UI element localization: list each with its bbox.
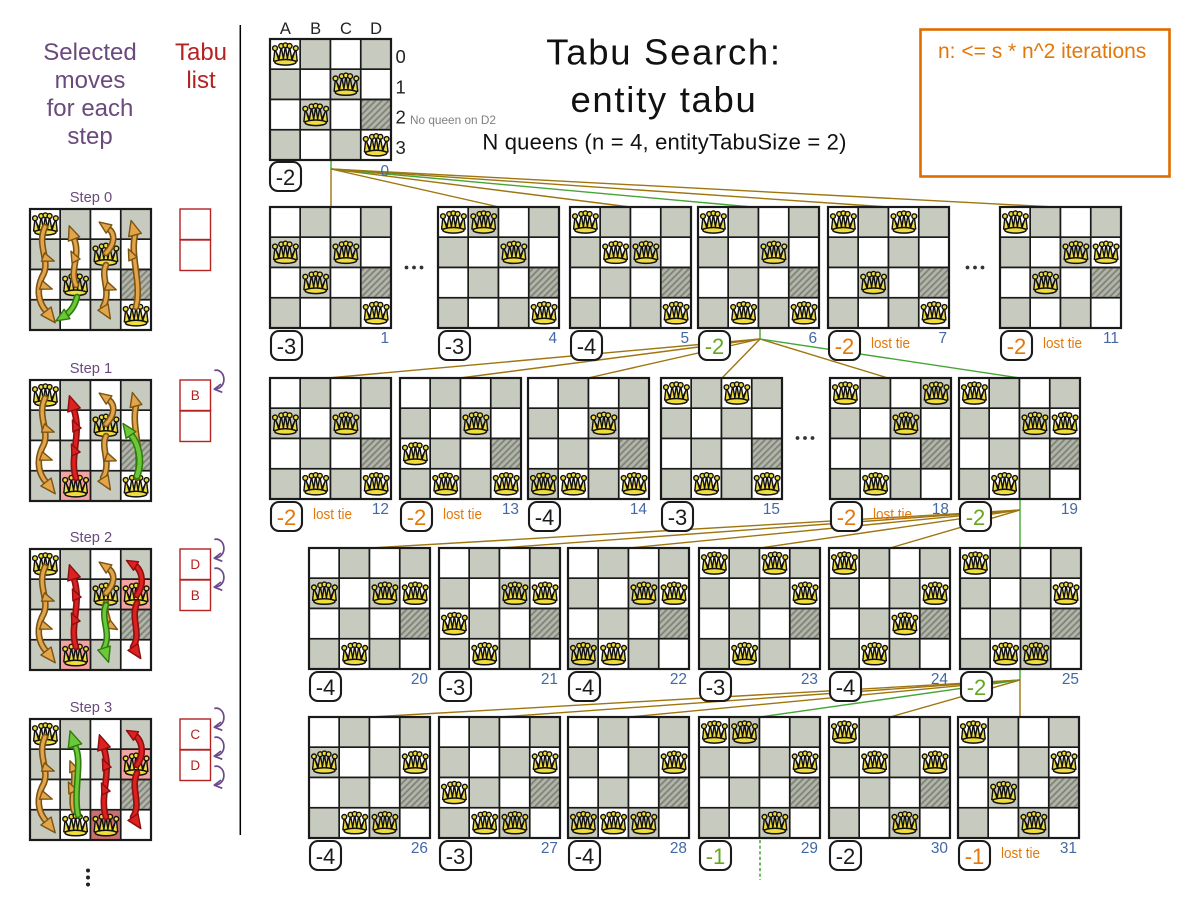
svg-text:18: 18 (932, 501, 949, 518)
svg-text:-2: -2 (277, 505, 297, 530)
svg-text:-3: -3 (446, 675, 466, 700)
svg-text:7: 7 (938, 330, 947, 347)
svg-text:No queen on D2: No queen on D2 (410, 113, 496, 127)
svg-text:D: D (190, 758, 200, 773)
svg-text:14: 14 (630, 501, 648, 518)
svg-text:-2: -2 (966, 505, 986, 530)
svg-text:C: C (190, 727, 200, 742)
svg-text:6: 6 (808, 330, 817, 347)
svg-text:-2: -2 (836, 844, 856, 869)
svg-text:n: <= s * n^2 iterations: n: <= s * n^2 iterations (938, 40, 1146, 63)
svg-text:-2: -2 (705, 334, 725, 359)
svg-text:19: 19 (1061, 501, 1078, 518)
svg-text:-4: -4 (316, 844, 336, 869)
svg-text:-4: -4 (316, 675, 336, 700)
svg-text:N queens (n = 4, entityTabuSiz: N queens (n = 4, entityTabuSize = 2) (482, 130, 846, 155)
svg-text:13: 13 (502, 501, 519, 518)
svg-text:-2: -2 (1007, 334, 1027, 359)
svg-text:20: 20 (411, 671, 428, 688)
svg-text:27: 27 (541, 840, 558, 857)
svg-text:4: 4 (548, 330, 557, 347)
svg-text:-3: -3 (277, 334, 297, 359)
svg-text:-1: -1 (706, 844, 726, 869)
svg-text:-4: -4 (577, 334, 597, 359)
svg-text:24: 24 (931, 671, 949, 688)
svg-text:D: D (190, 557, 200, 572)
svg-text:Step 3: Step 3 (70, 700, 112, 716)
svg-text:Step 2: Step 2 (70, 530, 112, 546)
svg-text:11: 11 (1103, 330, 1119, 347)
svg-text:lost tie: lost tie (1043, 335, 1082, 352)
svg-text:lost tie: lost tie (443, 506, 482, 523)
svg-text:-3: -3 (446, 844, 466, 869)
svg-text:lost tie: lost tie (871, 335, 910, 352)
svg-text:lost tie: lost tie (873, 506, 912, 523)
svg-text:29: 29 (801, 840, 818, 857)
svg-text:23: 23 (801, 671, 818, 688)
svg-text:-2: -2 (837, 505, 857, 530)
svg-text:-2: -2 (835, 334, 855, 359)
svg-text:22: 22 (670, 671, 687, 688)
svg-text:-4: -4 (535, 505, 555, 530)
svg-text:0: 0 (380, 163, 389, 180)
svg-text:Step 0: Step 0 (70, 190, 112, 206)
svg-text:-4: -4 (575, 675, 595, 700)
svg-text:-4: -4 (836, 675, 856, 700)
svg-text:-3: -3 (445, 334, 465, 359)
svg-text:5: 5 (680, 330, 689, 347)
svg-text:28: 28 (670, 840, 687, 857)
svg-text:B: B (191, 588, 200, 603)
svg-text:lost tie: lost tie (1001, 845, 1040, 862)
svg-text:26: 26 (411, 840, 428, 857)
svg-text:12: 12 (372, 501, 389, 518)
svg-text:21: 21 (541, 671, 558, 688)
svg-text:31: 31 (1060, 840, 1077, 857)
svg-text:-2: -2 (967, 675, 987, 700)
svg-text:1: 1 (380, 330, 389, 347)
svg-text:15: 15 (763, 501, 780, 518)
svg-text:-3: -3 (706, 675, 726, 700)
svg-text:-2: -2 (276, 165, 296, 190)
svg-text:-4: -4 (575, 844, 595, 869)
svg-text:-2: -2 (407, 505, 427, 530)
svg-text:25: 25 (1062, 671, 1079, 688)
svg-text:Step 1: Step 1 (70, 361, 112, 377)
svg-text:-3: -3 (668, 505, 688, 530)
svg-text:B: B (191, 388, 200, 403)
svg-text:lost tie: lost tie (313, 506, 352, 523)
svg-text:-1: -1 (965, 844, 985, 869)
svg-text:30: 30 (931, 840, 948, 857)
